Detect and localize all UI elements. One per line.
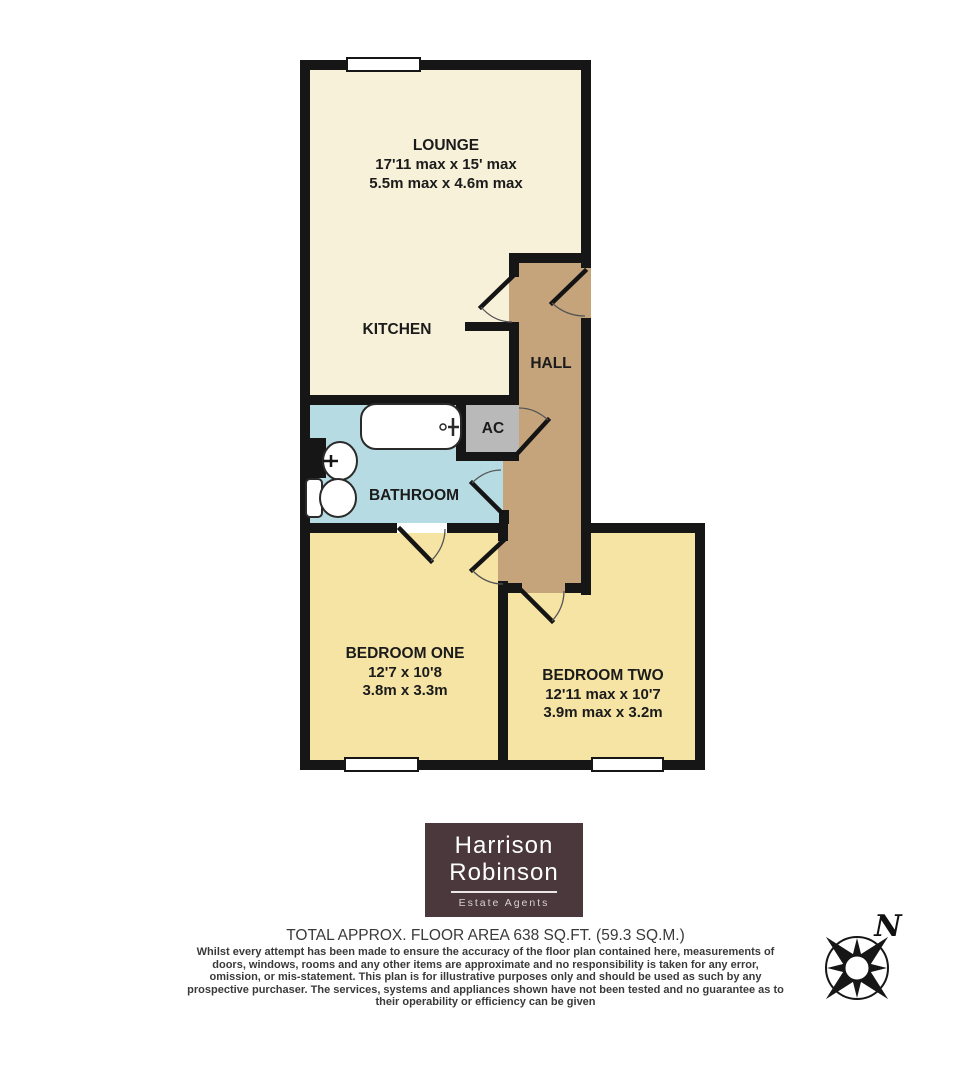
logo-divider — [451, 891, 557, 893]
bedroom-two-dims-imperial: 12'11 max x 10'7 — [545, 686, 661, 703]
agency-logo: Harrison Robinson Estate Agents — [425, 823, 583, 917]
lounge-window — [347, 58, 420, 71]
agency-name-line2: Robinson — [449, 859, 558, 886]
toilet-bowl — [320, 479, 356, 517]
disclaimer-text: Whilst every attempt has been made to en… — [186, 946, 786, 1009]
kitchen-label: KITCHEN — [363, 321, 432, 338]
floorplan-drawing: LOUNGE 17'11 max x 15' max 5.5m max x 4.… — [0, 0, 971, 800]
bedroom-one-window — [345, 758, 418, 771]
bedroom-two-dims-metric: 3.9m max x 3.2m — [543, 704, 662, 721]
compass-rose: N — [800, 895, 930, 1030]
floorplan-page: LOUNGE 17'11 max x 15' max 5.5m max x 4.… — [0, 0, 971, 1080]
agency-tagline: Estate Agents — [459, 897, 550, 909]
ac-label: AC — [482, 420, 504, 437]
lounge-label: LOUNGE — [413, 137, 479, 154]
hall-label: HALL — [530, 355, 571, 372]
bedroom-one-label: BEDROOM ONE — [346, 645, 465, 662]
bedroom-one-dims-metric: 3.8m x 3.3m — [362, 682, 447, 699]
lounge-dims-metric: 5.5m max x 4.6m max — [369, 175, 523, 192]
bedroom-two-window — [592, 758, 663, 771]
lounge-dims-imperial: 17'11 max x 15' max — [375, 156, 517, 173]
compass-north-label: N — [873, 909, 903, 944]
bedroom-two-label: BEDROOM TWO — [542, 667, 663, 684]
bathtub-drain — [440, 424, 446, 430]
agency-name-line1: Harrison — [455, 832, 554, 859]
bedroom-one-dims-imperial: 12'7 x 10'8 — [368, 664, 442, 681]
bathroom-label: BATHROOM — [369, 487, 459, 504]
